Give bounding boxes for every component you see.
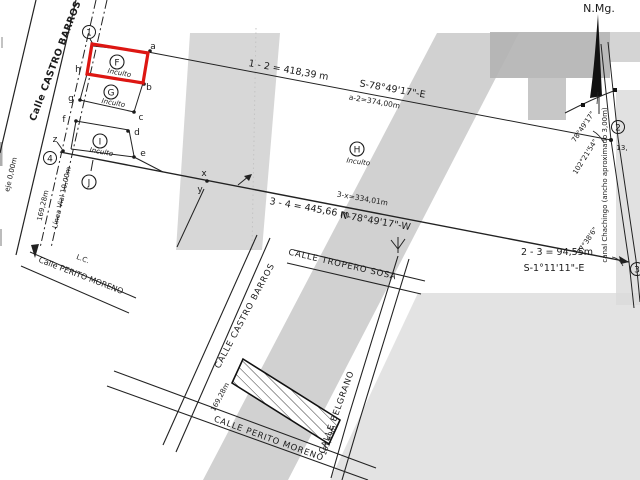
parcel-g-label: G [108,89,115,99]
vertex-label-y: y [197,185,203,195]
vertex-label-z: z [53,135,58,145]
vertex-label-3: 3 [634,266,640,276]
vertex-label-2: 2 [615,124,621,134]
parcel-h-status: Inculto [346,156,371,167]
survey-drawing: Calle CASTRO BARROS eje 0,00m 169,28m Lí… [0,0,640,480]
parcel-j-label: J [87,179,91,189]
linea-vial-label: Línea Vial 10,00m [51,166,73,229]
vertex-label-4: 4 [47,155,53,165]
vertex-label-g: g [68,94,74,104]
vertex-label-c: c [139,113,144,123]
leader-parcel-j [91,160,93,171]
inset-street-castro-barros: CALLE CASTRO BARROS [213,262,277,371]
vertex-label-1: 1 [86,29,92,39]
lc-label: L.C. [75,253,90,265]
parcel-h-label: H [354,146,361,156]
eje-label: eje 0,00m [3,156,19,192]
inset-frontage-label: 169,28m [209,381,231,413]
scan-artifact [0,229,2,246]
north-label: N.Mg. [583,2,615,15]
survey-plan-scan: Calle CASTRO BARROS eje 0,00m 169,28m Lí… [0,0,640,480]
vertex-label-e: e [140,149,146,159]
vertex-label-h: h [75,65,81,75]
parcel-f-label: F [114,59,119,69]
parcel-i-status: Inculto [89,146,114,158]
leader-vertex-z [57,142,62,149]
scan-artifact [1,37,3,48]
vertex-label-a: a [150,42,156,52]
canal-label: canal Chachingo (ancho aproximado 3,00m) [601,107,609,263]
vertex-label-x: x [201,169,207,179]
bearing-2-3: S-1°11'11"-E [524,263,585,274]
vertex-label-d: d [134,128,140,138]
frontage-label-main: 169,28m [36,189,51,221]
vertex-label-f: f [62,115,66,125]
partial-13-label: 13, [616,144,627,152]
street-name-castro-barros: Calle CASTRO BARROS [28,0,84,123]
vertex-label-b: b [146,83,152,93]
parcel-i-label: I [99,138,102,148]
